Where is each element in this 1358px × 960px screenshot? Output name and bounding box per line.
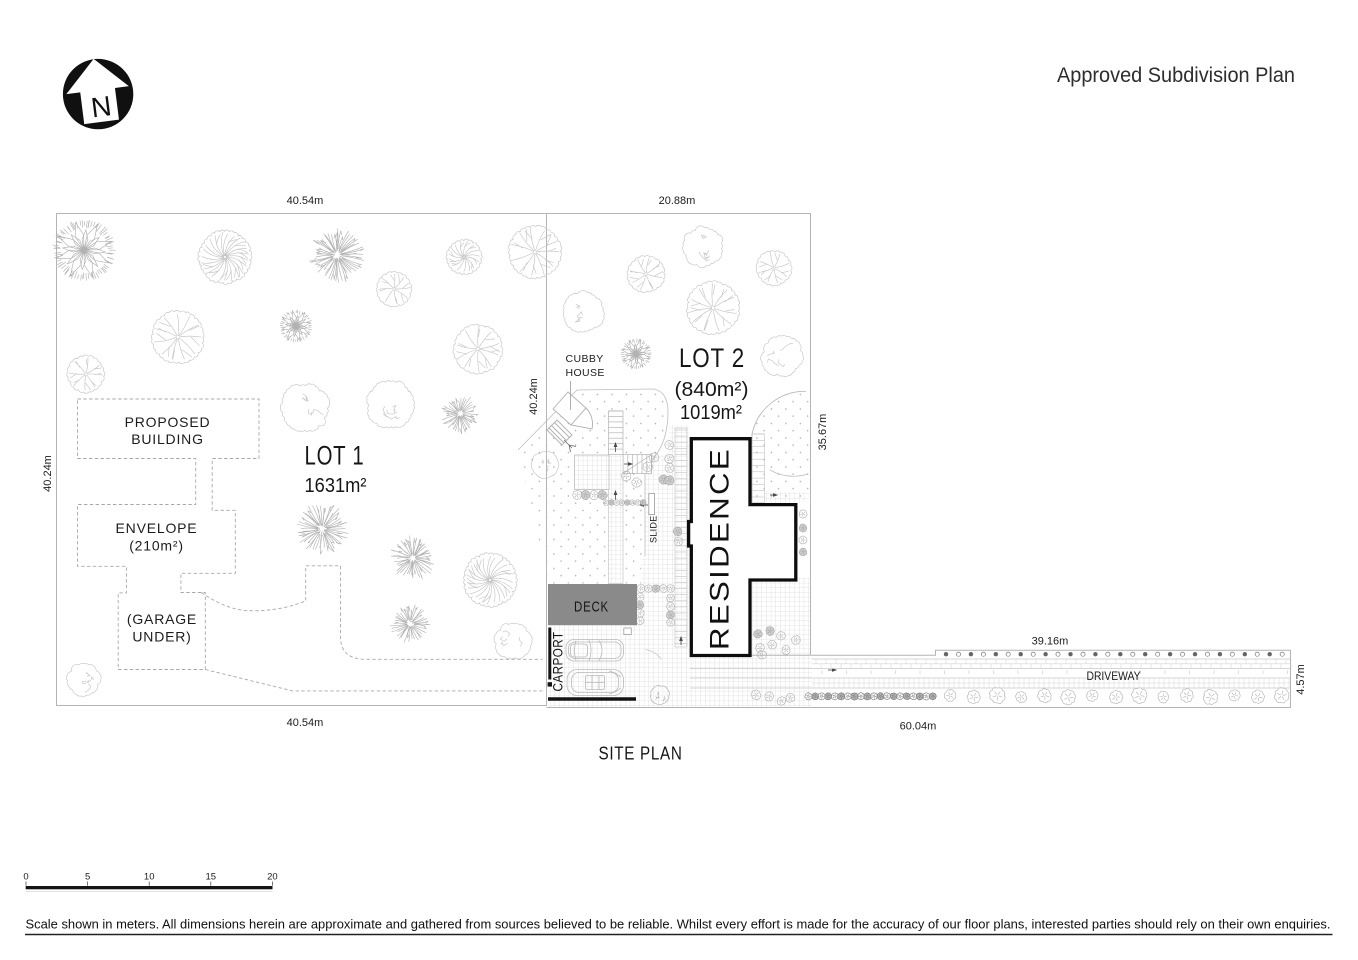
svg-text:DECK: DECK bbox=[574, 600, 609, 616]
svg-text:DRIVEWAY: DRIVEWAY bbox=[1087, 671, 1141, 683]
svg-text:0: 0 bbox=[23, 872, 28, 883]
svg-text:40.24m: 40.24m bbox=[528, 378, 540, 415]
svg-text:15: 15 bbox=[206, 872, 217, 883]
svg-text:Scale shown in meters. All dim: Scale shown in meters. All dimensions he… bbox=[26, 917, 1331, 932]
svg-text:Approved Subdivision Plan: Approved Subdivision Plan bbox=[1057, 63, 1295, 87]
svg-text:4.57m: 4.57m bbox=[1295, 664, 1307, 695]
svg-text:40.54m: 40.54m bbox=[287, 195, 324, 207]
svg-text:20.88m: 20.88m bbox=[659, 195, 696, 207]
svg-text:20: 20 bbox=[267, 872, 278, 883]
svg-text:SLIDE: SLIDE bbox=[649, 515, 659, 543]
svg-text:(GARAGEUNDER): (GARAGEUNDER) bbox=[127, 611, 197, 645]
svg-text:LOT 1: LOT 1 bbox=[305, 441, 365, 471]
svg-text:60.04m: 60.04m bbox=[900, 721, 937, 733]
svg-text:1631m²: 1631m² bbox=[305, 474, 367, 497]
svg-text:5: 5 bbox=[85, 872, 90, 883]
svg-text:SITE PLAN: SITE PLAN bbox=[599, 744, 683, 764]
svg-text:40.54m: 40.54m bbox=[287, 717, 324, 729]
svg-text:LOT 2: LOT 2 bbox=[679, 343, 745, 373]
svg-text:35.67m: 35.67m bbox=[817, 414, 829, 451]
svg-text:39.16m: 39.16m bbox=[1032, 636, 1069, 648]
svg-text:(840m²): (840m²) bbox=[675, 378, 749, 401]
svg-text:N: N bbox=[89, 90, 113, 123]
svg-text:RESIDENCE: RESIDENCE bbox=[705, 447, 735, 650]
svg-text:PROPOSEDBUILDING: PROPOSEDBUILDING bbox=[125, 414, 211, 447]
svg-text:1019m²: 1019m² bbox=[680, 401, 742, 424]
svg-text:CARPORT: CARPORT bbox=[551, 632, 566, 692]
svg-text:10: 10 bbox=[144, 872, 155, 883]
svg-text:40.24m: 40.24m bbox=[42, 455, 54, 492]
